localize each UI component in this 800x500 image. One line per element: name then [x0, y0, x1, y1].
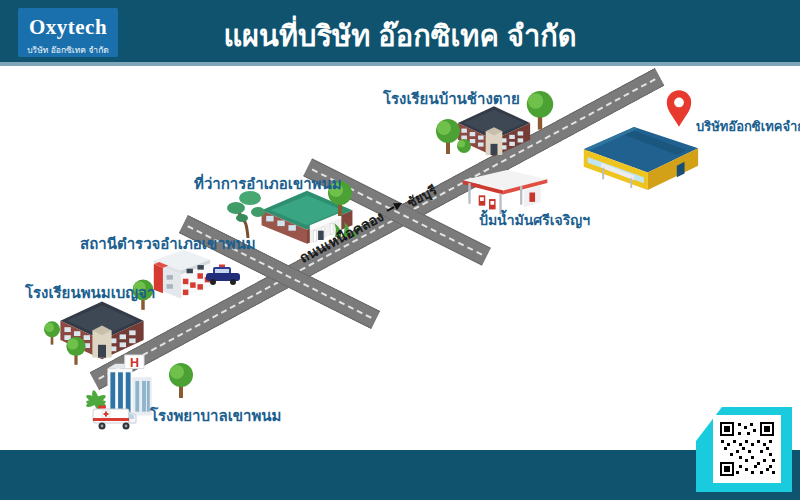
header-divider: [0, 62, 800, 66]
location-pin-icon: [664, 90, 694, 128]
map-poster: Oxytech บริษัท อ๊อกซิเทค จำกัด แผนที่บริ…: [0, 0, 800, 500]
header-bar: Oxytech บริษัท อ๊อกซิเทค จำกัด แผนที่บริ…: [0, 0, 800, 62]
logo-subtitle: บริษัท อ๊อกซิเทค จำกัด: [18, 43, 118, 57]
tree-icon: [165, 362, 197, 402]
svg-text:H: H: [130, 356, 139, 370]
company-building: [576, 122, 702, 190]
police-station-label: สถานีตำรวจอำเภอเขาพนม: [80, 232, 256, 256]
gas-station-label: ปั้มน้ำมันศรีเจริญฯ: [479, 209, 590, 231]
tree-icon: [64, 336, 88, 368]
company-label: บริษัทอ๊อกซิเทคจำกัด: [696, 116, 800, 137]
qr-code: [713, 415, 781, 483]
tree-icon: [523, 90, 557, 134]
district-office-label: ที่ว่าการอำเภอเขาพนม: [194, 172, 342, 196]
logo-title: Oxytech: [18, 15, 118, 40]
footer-bar: 369 หมู่3 ตำบลเขาดิน อำเภอเขาพนม จังหวัด…: [0, 450, 800, 500]
school-left-label: โรงเรียนพนมเบญจา: [25, 281, 155, 305]
police-car-icon: [205, 264, 241, 286]
ambulance-icon: [90, 402, 140, 433]
page-title: แผนที่บริษัท อ๊อกซิเทค จำกัด: [223, 13, 576, 59]
hospital-label: โรงพยาบาลเขาพนม: [150, 404, 282, 428]
school-top-label: โรงเรียนบ้านช้างตาย: [383, 87, 520, 111]
tree-icon: [42, 320, 62, 348]
company-logo: Oxytech บริษัท อ๊อกซิเทค จำกัด: [18, 8, 118, 57]
bush-icon: [456, 138, 472, 154]
qr-pattern-icon: [717, 419, 777, 479]
